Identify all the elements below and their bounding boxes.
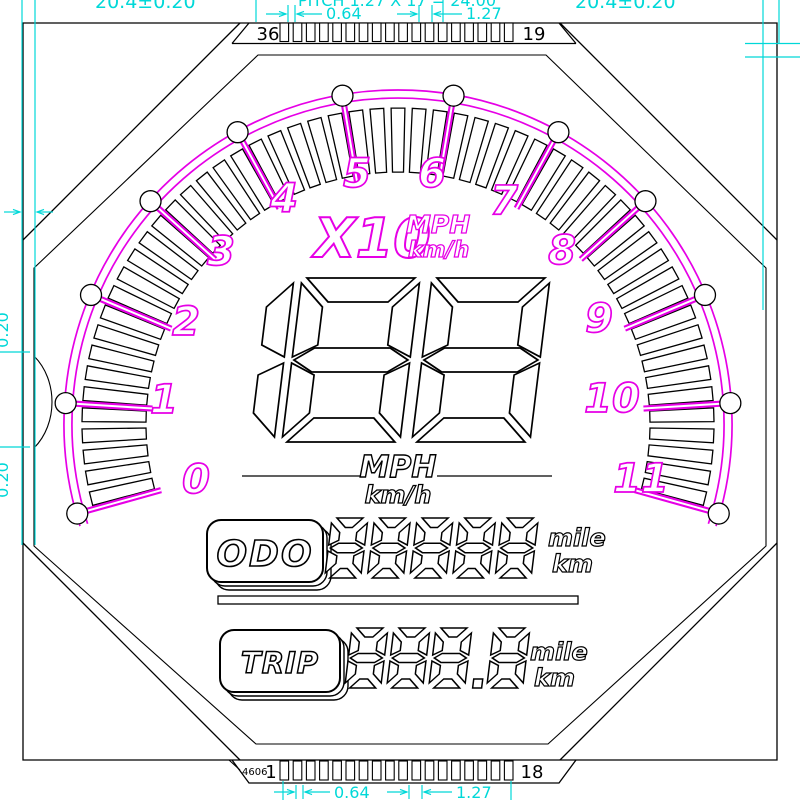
spoke-knob: [720, 393, 741, 414]
segment-c: [414, 661, 426, 683]
speed-digit: [412, 278, 550, 442]
connector-pin: [320, 23, 329, 42]
segment-a: [421, 518, 448, 528]
segment-g: [422, 348, 539, 372]
connector-pin: [280, 23, 289, 42]
trip-label: TRIP: [241, 646, 319, 680]
segment-c: [522, 551, 534, 573]
speed-units: MPHkm/h: [242, 450, 552, 509]
dial-unit-kmh: km/h: [408, 238, 469, 263]
spoke-knob: [635, 191, 656, 212]
dial-number: 0: [182, 457, 210, 503]
segment-g: [434, 654, 467, 663]
connector-pin: [452, 761, 461, 780]
speed-unit-mph: MPH: [360, 450, 437, 485]
segment-a: [440, 628, 467, 637]
segment-a: [356, 628, 383, 637]
segment-c: [394, 551, 406, 573]
segment-b: [260, 283, 293, 357]
connector-pin: [425, 23, 434, 42]
drawing-canvas: 3619118460601234567891011X10MPHkm/hMPHkm…: [0, 0, 800, 800]
connector-pin: [359, 761, 368, 780]
segment-a: [398, 628, 425, 637]
segment-a: [434, 278, 545, 302]
minor-tick-segment: [370, 108, 387, 173]
connector-pin: [504, 23, 513, 42]
odo-unit-mile: mile: [548, 524, 606, 552]
segment-c: [352, 551, 364, 573]
segment-e: [368, 551, 380, 573]
connector-pin: [478, 23, 487, 42]
connector-pin: [491, 23, 500, 42]
clipped-dim-top-center: PITCH 1.27 X 17 = 24.00: [298, 0, 496, 10]
speed-unit-kmh: km/h: [365, 481, 432, 509]
spoke-knob: [55, 393, 76, 414]
spoke-knob: [548, 122, 569, 143]
dial-unit-mph: MPH: [406, 210, 470, 239]
connector-pin: [280, 761, 289, 780]
segment-f: [414, 523, 426, 545]
segment-g: [392, 654, 425, 663]
dial-number: 3: [207, 229, 235, 275]
speed-digits: [250, 278, 550, 442]
segment-d: [392, 679, 419, 688]
connector-pin: [372, 761, 381, 780]
clipped-dim-top-left: 20.4±0.20: [95, 0, 196, 13]
dial-number: 1: [150, 377, 178, 423]
segment-e: [453, 551, 465, 573]
connector-pin: [293, 23, 302, 42]
clipped-dim-left-upper: 0.20: [0, 312, 12, 348]
connector-pin: [399, 761, 408, 780]
connector-pin: [306, 761, 315, 780]
segment-b: [518, 633, 530, 655]
connector-pin: [333, 761, 342, 780]
corner-cut-bottom-left: [23, 543, 240, 760]
trip-digit: [487, 628, 530, 688]
odo-row: ODOmilekm: [207, 518, 606, 590]
segment-g: [415, 543, 448, 553]
spoke-knob: [81, 284, 102, 305]
segment-e: [387, 661, 399, 683]
trip-unit-km: km: [534, 664, 575, 692]
segment-d: [287, 418, 398, 442]
segment-g: [492, 654, 525, 663]
segment-c: [250, 363, 283, 437]
trip-digit: [429, 628, 472, 688]
segment-d: [415, 569, 442, 579]
trip-unit-mile: mile: [530, 638, 588, 666]
segment-d: [457, 569, 484, 579]
segment-c: [480, 551, 492, 573]
fill-port-bump: [34, 356, 52, 448]
segment-d: [417, 418, 528, 442]
segment-g: [372, 543, 405, 553]
speed-digit: [282, 278, 420, 442]
decimal-point: [473, 679, 483, 688]
spoke-knob: [708, 503, 729, 524]
connector-pin: [438, 761, 447, 780]
segment-d: [330, 569, 357, 579]
segment-g: [292, 348, 409, 372]
segment-a: [336, 518, 363, 528]
dial-number: 9: [585, 296, 613, 342]
segment-f: [329, 523, 341, 545]
connector-pin: [478, 761, 487, 780]
bottom-connector: 1184606: [229, 760, 576, 783]
segment-a: [506, 518, 533, 528]
segment-a: [304, 278, 415, 302]
connector-pin: [386, 761, 395, 780]
bottom-pad-width-dim: 0.64: [334, 783, 370, 800]
segment-b: [483, 523, 495, 545]
spoke-knob: [694, 284, 715, 305]
minor-tick-segment: [391, 108, 405, 172]
spoke-knob: [140, 191, 161, 212]
segment-e: [487, 661, 499, 683]
dial-number: 8: [548, 228, 576, 274]
connector-pin: [306, 23, 315, 42]
segment-b: [398, 523, 410, 545]
odo-digit: [452, 518, 495, 578]
connector-pin: [293, 761, 302, 780]
dial-number: 7: [490, 178, 518, 224]
trip-digit: [387, 628, 430, 688]
note-leader-line: [229, 760, 240, 770]
segment-f: [491, 633, 503, 655]
odo-digit: [495, 518, 538, 578]
segment-a: [464, 518, 491, 528]
segment-f: [349, 633, 361, 655]
dial-number: 10: [584, 376, 640, 422]
minor-tick-segment: [83, 445, 148, 464]
segment-b: [418, 633, 430, 655]
connector-pin: [425, 761, 434, 780]
connector-pin: [504, 761, 513, 780]
segment-d: [434, 679, 461, 688]
segment-b: [526, 523, 538, 545]
separator-bar: [218, 596, 578, 604]
segment-e: [496, 551, 508, 573]
segment-d: [500, 569, 527, 579]
segment-f: [391, 633, 403, 655]
clipped-dim-top-right: 20.4±0.20: [575, 0, 676, 13]
segment-a: [378, 518, 405, 528]
connector-pin: [333, 23, 342, 42]
segment-b: [460, 633, 472, 655]
segment-g: [330, 543, 363, 553]
segment-f: [371, 523, 383, 545]
connector-pin: [438, 23, 447, 42]
segment-f: [433, 633, 445, 655]
connector-note: 4606: [242, 767, 267, 778]
connector-pin: [386, 23, 395, 42]
connector-pin: [412, 23, 421, 42]
odo-unit-km: km: [552, 550, 593, 578]
connector-pin: [320, 761, 329, 780]
segment-e: [345, 661, 357, 683]
segment-g: [500, 543, 533, 553]
segment-d: [372, 569, 399, 579]
connector-pin: [491, 761, 500, 780]
segment-e: [429, 661, 441, 683]
segment-g: [350, 654, 383, 663]
connector-pin: [465, 761, 474, 780]
top-connector: 3619: [232, 23, 576, 45]
spoke-knob: [443, 85, 464, 106]
segment-b: [376, 633, 388, 655]
trip-decimal: [473, 679, 483, 688]
connector-pin: [399, 23, 408, 42]
trip-row: TRIPmilekm: [220, 628, 588, 700]
segment-g: [458, 543, 491, 553]
multiplier-label: X10MPHkm/h: [311, 207, 470, 270]
odo-digit: [367, 518, 410, 578]
segment-c: [456, 661, 468, 683]
bottom-pitch-dim: 1.27: [456, 783, 492, 800]
top-pin-end-label: 19: [523, 24, 546, 45]
segment-b: [440, 523, 452, 545]
dial-number: 2: [172, 299, 200, 345]
dial-number: 11: [613, 456, 669, 502]
segment-c: [514, 661, 526, 683]
segment-d: [492, 679, 519, 688]
connector-pin: [412, 761, 421, 780]
connector-pin: [346, 23, 355, 42]
trip-digit: [345, 628, 388, 688]
top-pin-start-label: 36: [257, 24, 280, 45]
segment-c: [372, 661, 384, 683]
bottom-pin-end-label: 18: [521, 762, 544, 783]
connector-pin: [465, 23, 474, 42]
connector-pin: [346, 761, 355, 780]
spoke-knob: [67, 503, 88, 524]
connector-pin: [452, 23, 461, 42]
connector-pin: [359, 23, 368, 42]
odo-digit: [410, 518, 453, 578]
segment-b: [355, 523, 367, 545]
minor-tick-segment: [650, 428, 714, 443]
odo-label: ODO: [216, 534, 313, 575]
segment-a: [498, 628, 525, 637]
segment-e: [410, 551, 422, 573]
dial-number: 6: [418, 151, 446, 197]
lcd-panel-drawing: 3619118460601234567891011X10MPHkm/hMPHkm…: [0, 0, 800, 800]
segment-f: [456, 523, 468, 545]
dial-number: 4: [269, 176, 298, 222]
dial-number: 5: [343, 151, 371, 197]
connector-pin: [372, 23, 381, 42]
minor-tick-segment: [82, 428, 146, 443]
spoke-knob: [227, 122, 248, 143]
segment-f: [499, 523, 511, 545]
segment-c: [437, 551, 449, 573]
spoke-knob: [332, 85, 353, 106]
clipped-dim-left-lower: 0.20: [0, 462, 12, 498]
segment-d: [350, 679, 377, 688]
